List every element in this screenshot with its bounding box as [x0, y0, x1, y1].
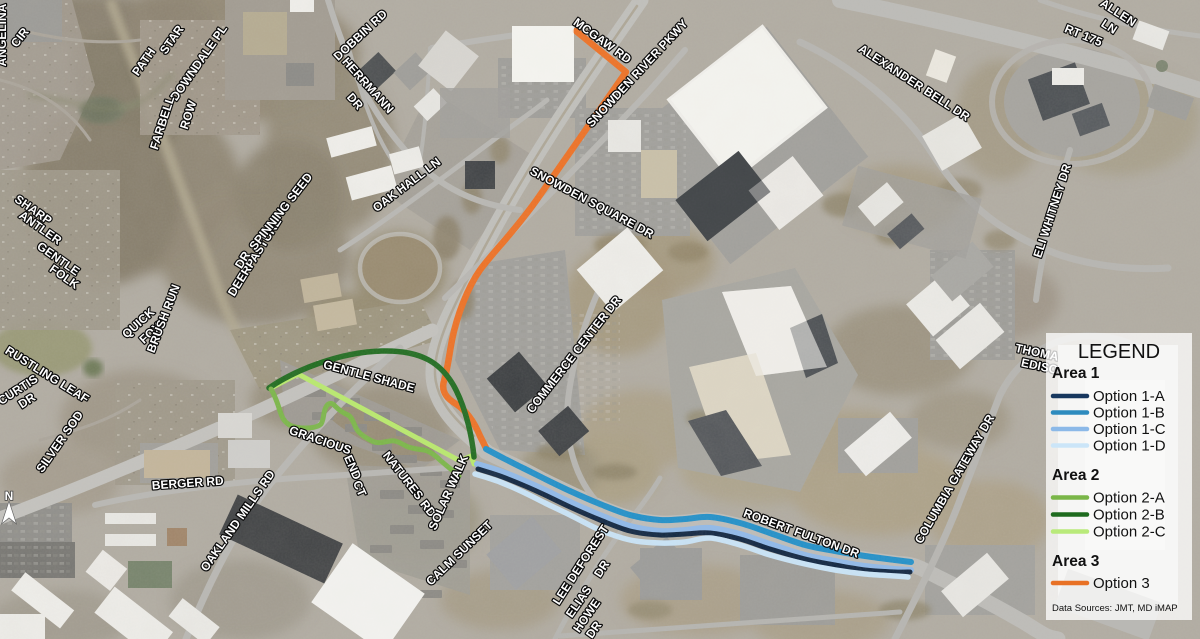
svg-text:Option 1-C: Option 1-C	[1093, 421, 1166, 438]
svg-text:Option 2-B: Option 2-B	[1093, 507, 1165, 524]
svg-text:Option 1-B: Option 1-B	[1093, 405, 1165, 422]
svg-text:Data Sources: JMT, MD iMAP: Data Sources: JMT, MD iMAP	[1052, 603, 1178, 614]
svg-text:Area 2: Area 2	[1052, 467, 1099, 484]
svg-text:Option 1-D: Option 1-D	[1093, 438, 1166, 455]
svg-text:Option 3: Option 3	[1093, 575, 1150, 592]
svg-text:ANGELINA: ANGELINA	[0, 3, 9, 66]
svg-text:Option 2-A: Option 2-A	[1093, 490, 1165, 507]
svg-text:Option 1-A: Option 1-A	[1093, 388, 1165, 405]
svg-text:LEGEND: LEGEND	[1078, 341, 1160, 363]
svg-text:Area 1: Area 1	[1052, 365, 1100, 382]
svg-text:Option 2-C: Option 2-C	[1093, 524, 1166, 541]
svg-text:Area 3: Area 3	[1052, 553, 1100, 570]
